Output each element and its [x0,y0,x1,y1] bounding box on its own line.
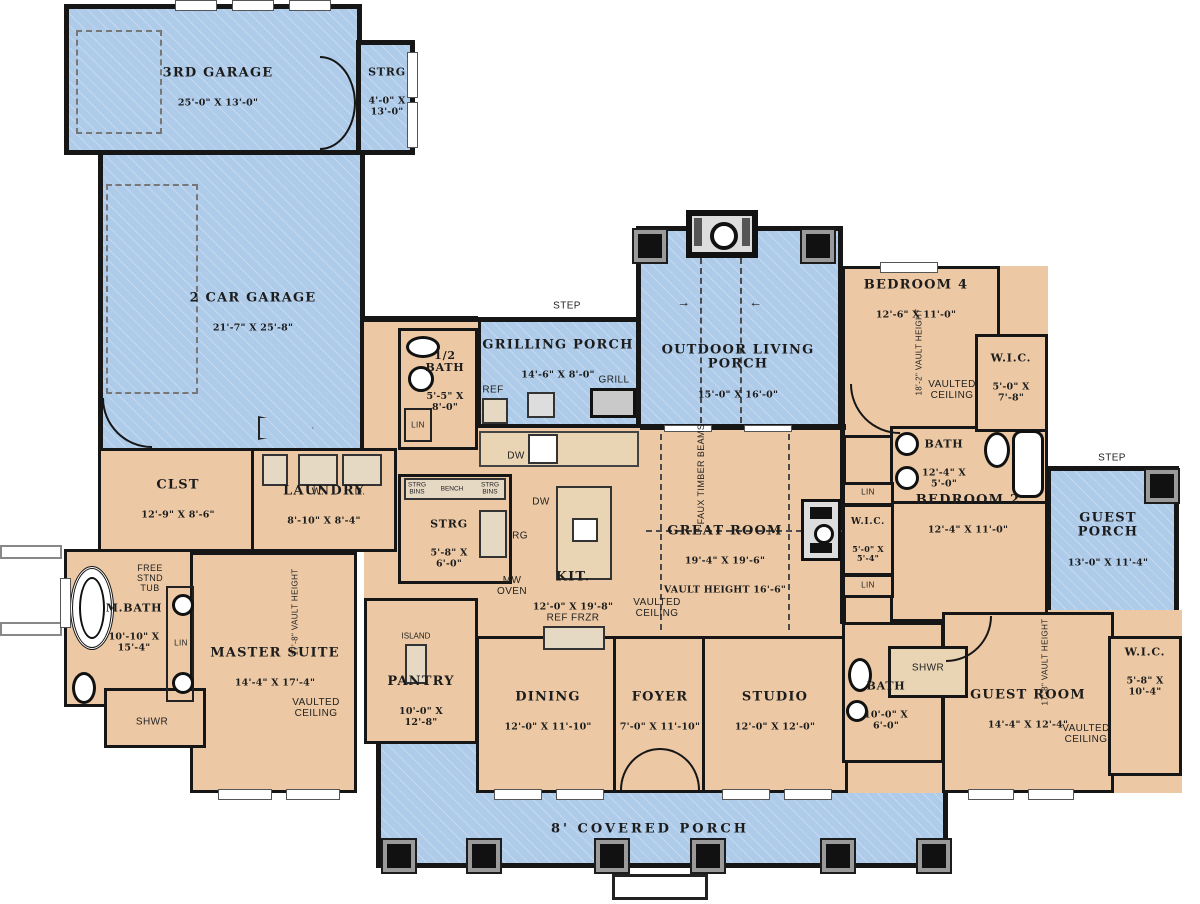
bedroom4-wic-label: W.I.C. 5'-0" X 7'-8" [991,334,1032,421]
room-dims: 5'-0" X 5'-4" [851,545,885,563]
laundry-label: LAUNDRY 8'-10" X 8'-4" [283,467,365,546]
beam-line [788,434,790,630]
dw-label: DW [532,496,549,507]
shwr-label: SHWR [912,662,944,673]
lin-label: LIN [861,489,875,498]
room-name: GREAT ROOM [664,524,786,539]
window-sill [0,622,62,636]
toilet-icon [72,672,96,704]
garage-slab-outline [106,184,198,394]
room-name: 2 CAR GARAGE [190,291,317,306]
mudroom-storage-label: STRG 5'-8" X 6'-0" [430,500,468,587]
window-icon [407,52,418,98]
outdoor-porch-label: OUTDOOR LIVING PORCH 15'-0" X 16'-0" [662,325,815,418]
shwr-label: SHWR [136,716,168,727]
guest-porch-label: GUEST PORCH 13'-0" X 11'-4" [1062,493,1154,586]
sink-icon [895,432,919,456]
vaulted-ceiling-label: VAULTED CEILING [1062,723,1109,745]
room-dims: 12'-9" X 8'-6" [141,511,214,522]
studio-label: STUDIO 12'-0" X 12'-0" [735,673,815,752]
window-icon [968,789,1014,800]
lin-label: LIN [411,422,425,431]
room-dims: 25'-0" X 13'-0" [163,99,274,110]
window-icon [494,789,542,800]
vault-height-label: 18'-2" VAULT HEIGHT [916,308,925,395]
vaulted-ceiling-label: VAULTED CEILING [292,697,339,719]
porch-column-icon [918,840,950,872]
room-name: BEDROOM 2 [916,493,1020,508]
room-name: FOYER [620,690,700,705]
room-dims: 14'-4" X 17'-4" [210,679,340,690]
bench-label: BENCH [441,485,464,492]
window-icon [407,102,418,148]
room-name: BATH [922,438,966,450]
room-name: 1/2 BATH [425,350,464,375]
room-name: 3RD GARAGE [163,66,274,81]
door-arrow-icon: ← [749,296,762,311]
kitchen-counter [479,431,639,467]
pantry-label: PANTRY 10'-0" X 12'-8" [387,657,454,747]
room-dims: 21'-7" X 25'-8" [190,324,317,335]
entry-step [612,874,708,900]
great-room-label: GREAT ROOM 19'-4" X 19'-6" VAULT HEIGHT … [664,506,786,613]
dw-label: DW [507,450,524,461]
window-icon [175,0,217,11]
window-icon [784,789,832,800]
master-suite-label: MASTER SUITE 14'-4" X 17'-4" [210,629,340,708]
dryer-label: D. [355,486,366,497]
vault-height-label: 17'-8" VAULT HEIGHT [292,568,301,655]
covered-porch-label: 8' COVERED PORCH [551,823,749,838]
foyer-label: FOYER 7'-0" X 11'-10" [620,673,700,752]
porch-column-icon [802,230,834,262]
room-name: STUDIO [735,690,815,705]
range-icon [479,510,507,558]
room-dims: 4'-0" X 13'-0" [368,96,406,117]
guest-bath-label: BATH 10'-0" X 6'-0" [864,662,908,749]
porch-column-icon [596,840,628,872]
room-name: KIT. [533,570,613,585]
lin-label: LIN [861,582,875,591]
room-name: GUEST ROOM [970,688,1086,703]
room-extra: VAULT HEIGHT 16'-6" [664,585,786,596]
room-dims: 12'-0" X 12'-0" [735,723,815,734]
door-arrow-icon: → [677,296,690,311]
room-dims: 12'-4" X 11'-0" [916,526,1020,537]
step-label: STEP [1098,452,1126,463]
room-dims: 13'-0" X 11'-4" [1062,558,1154,569]
window-icon [289,0,331,11]
two-car-garage-label: 2 CAR GARAGE 21'-7" X 25'-8" [190,274,317,353]
window-icon [722,789,770,800]
porch-column-icon [634,230,666,262]
room-name: W.I.C. [851,517,885,527]
window-icon [286,789,340,800]
window-icon [60,578,71,628]
room-dims: 10'-10" X 15'-4" [106,632,163,653]
window-icon [218,789,272,800]
island-label: ISLAND [402,633,431,642]
master-bath-label: M.BATH 10'-10" X 15'-4" [106,584,163,671]
mw-oven-label: MW OVEN [497,575,527,597]
room-name: CLST [141,478,214,493]
half-bath-label: 1/2 BATH 5'-5" X 8'-0" [425,332,464,432]
ref-icon [482,398,508,424]
third-garage-label: 3RD GARAGE 25'-0" X 13'-0" [163,49,274,128]
outdoor-fireplace-icon [686,210,758,258]
floor-plan: 8' COVERED PORCH GUEST PORCH 13'-0" X 11… [0,0,1200,904]
room-name: M.BATH [106,602,163,614]
porch-column-icon [822,840,854,872]
room-name: STRG [368,66,406,78]
garage-slab-outline [76,30,162,134]
window-icon [232,0,274,11]
room-dims: 15'-0" X 16'-0" [662,390,815,401]
room-name: MASTER SUITE [210,646,340,661]
ref-frzr-label: REF FRZR [547,612,600,623]
room-dims: 10'-0" X 6'-0" [864,710,908,731]
lin-label: LIN [174,640,188,649]
room-dims: 5'-5" X 8'-0" [425,393,464,414]
toilet-icon [984,432,1010,468]
bedroom2-label: BEDROOM 2 12'-4" X 11'-0" [916,476,1020,555]
vault-height-label: 17'-8" VAULT HEIGHT [1042,618,1051,705]
room-name: DINING [504,690,591,705]
washer-label: W. [312,486,324,497]
room-name: GRILLING PORCH [482,338,633,353]
window-icon [1028,789,1074,800]
room-dims: 5'-0" X 7'-8" [991,382,1032,403]
room-name: BEDROOM 4 [864,278,968,293]
sliding-door-icon [744,425,792,432]
room-name: STRG [430,518,468,530]
room-name: BATH [864,680,908,692]
grilling-porch-label: GRILLING PORCH 14'-6" X 8'-0" [482,321,633,400]
strg-bins-label: STRG BINS [481,482,499,497]
closet-label: CLST 12'-9" X 8'-6" [141,461,214,540]
rg-label: RG [512,530,528,541]
great-room-fireplace-icon [801,499,841,561]
window-icon [556,789,604,800]
room-name: W.I.C. [991,352,1032,364]
room-dims: 5'-8" X 6'-0" [430,548,468,569]
room-dims: 7'-0" X 11'-10" [620,723,700,734]
garage-storage-label: STRG 4'-0" X 13'-0" [368,48,406,135]
faux-timber-beams-label: FAUX TIMBER BEAMS [696,424,706,525]
room-dims: 5'-8" X 10'-4" [1125,676,1166,697]
kitchen-sink-icon [528,434,558,464]
porch-column-icon [692,840,724,872]
window-sill [0,545,62,559]
room-name: PANTRY [387,675,454,690]
room-dims: 10'-0" X 12'-8" [387,708,454,729]
dining-label: DINING 12'-0" X 11'-10" [504,673,591,752]
strg-bins-label: STRG BINS [408,482,426,497]
room-dims: 12'-0" X 11'-10" [504,723,591,734]
room-dims: 19'-4" X 19'-6" [664,557,786,568]
room-name: OUTDOOR LIVING PORCH [662,343,815,372]
free-stnd-tub-label: FREE STND TUB [137,563,163,593]
porch-column-icon [468,840,500,872]
grill-label: GRILL [599,374,630,385]
step-label: STEP [553,300,581,311]
vaulted-ceiling-label: VAULTED CEILING [928,379,975,401]
porch-column-icon [383,840,415,872]
vaulted-ceiling-label: VAULTED CEILING [633,597,680,619]
room-name: W.I.C. [1125,646,1166,658]
guest-wic-label: W.I.C. 5'-8" X 10'-4" [1125,628,1166,715]
hall-wic-label: W.I.C. 5'-0" X 5'-4" [851,499,885,581]
exterior-wall [364,316,478,322]
ref-label: REF [482,384,503,395]
room-name: GUEST PORCH [1062,511,1154,540]
room-dims: 8'-10" X 8'-4" [283,517,365,528]
